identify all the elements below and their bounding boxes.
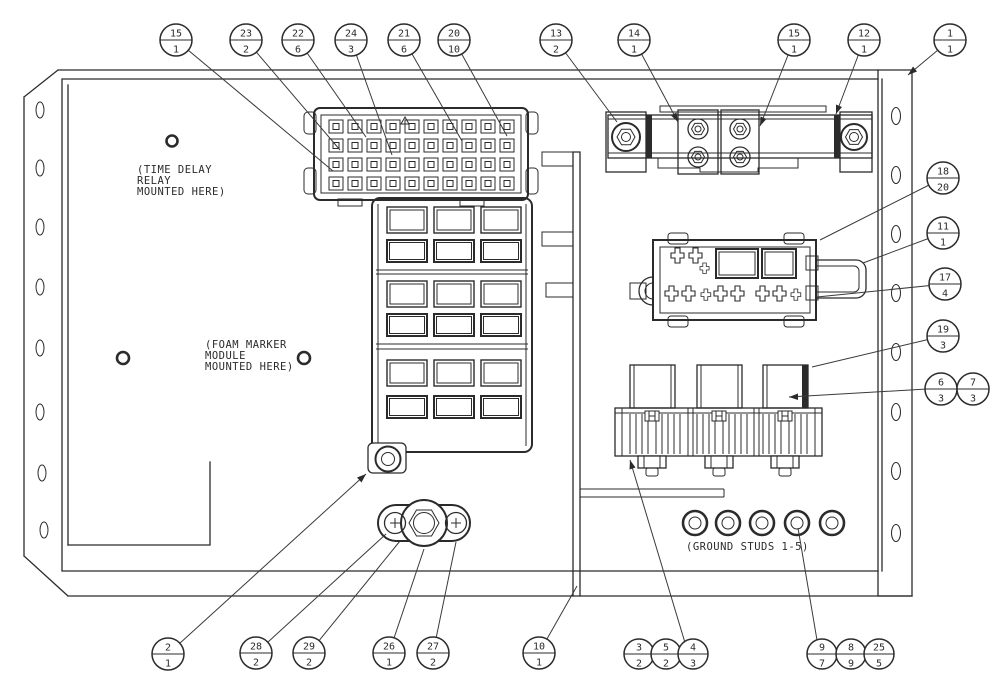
svg-text:7: 7 xyxy=(819,659,825,670)
foam-marker-note-line3: MOUNTED HERE) xyxy=(205,361,294,373)
svg-text:6: 6 xyxy=(938,378,944,389)
parts-diagram: (GROUND STUDS 1-5) (TIME DELAY RELAY MOU… xyxy=(0,0,1000,684)
left-stub xyxy=(630,277,653,305)
svg-text:10: 10 xyxy=(533,642,545,653)
callout-24-3: 243 xyxy=(335,24,367,56)
svg-text:12: 12 xyxy=(858,29,870,40)
callout-5-2: 52 xyxy=(651,639,681,670)
svg-text:9: 9 xyxy=(848,659,854,670)
svg-text:1: 1 xyxy=(165,659,171,670)
callout-10-1: 101 xyxy=(523,637,555,669)
svg-text:7: 7 xyxy=(970,378,976,389)
relay-module-stack xyxy=(368,198,532,473)
svg-text:9: 9 xyxy=(819,643,825,654)
mounting-hole xyxy=(298,352,310,364)
callout-23-2: 232 xyxy=(230,24,262,56)
floor-step xyxy=(68,462,210,545)
mounting-bolt xyxy=(841,124,867,150)
callout-14-1: 141 xyxy=(618,24,650,56)
svg-text:26: 26 xyxy=(383,642,395,653)
diagram-page: (GROUND STUDS 1-5) (TIME DELAY RELAY MOU… xyxy=(0,0,1000,684)
svg-text:13: 13 xyxy=(550,29,562,40)
svg-text:24: 24 xyxy=(345,29,357,40)
svg-text:1: 1 xyxy=(791,45,797,56)
arrowhead xyxy=(789,394,798,401)
callout-2-1: 21 xyxy=(152,638,184,670)
callout-18-20: 1820 xyxy=(927,162,959,194)
svg-text:3: 3 xyxy=(970,394,976,405)
svg-text:25: 25 xyxy=(873,643,885,654)
svg-text:20: 20 xyxy=(937,183,949,194)
ground-studs: (GROUND STUDS 1-5) xyxy=(683,511,844,553)
svg-text:20: 20 xyxy=(448,29,460,40)
center-stud xyxy=(401,500,447,546)
svg-text:4: 4 xyxy=(690,643,696,654)
callout-28-2: 282 xyxy=(240,637,272,669)
svg-text:22: 22 xyxy=(292,29,304,40)
callout-4-3: 43 xyxy=(678,639,708,670)
callout-6-3: 63 xyxy=(925,373,957,405)
svg-text:1: 1 xyxy=(940,238,946,249)
svg-text:3: 3 xyxy=(636,643,642,654)
svg-text:2: 2 xyxy=(253,658,259,669)
svg-text:28: 28 xyxy=(250,642,262,653)
callout-11-1: 111 xyxy=(927,217,959,249)
svg-text:19: 19 xyxy=(937,325,949,336)
callout-7-3: 73 xyxy=(957,373,989,405)
callout-12-1: 121 xyxy=(848,24,880,56)
arrowhead xyxy=(630,460,636,470)
callout-21-6: 216 xyxy=(388,24,420,56)
svg-text:1: 1 xyxy=(536,658,542,669)
svg-text:2: 2 xyxy=(165,643,171,654)
svg-text:6: 6 xyxy=(295,45,301,56)
svg-text:5: 5 xyxy=(663,643,669,654)
svg-text:1: 1 xyxy=(947,45,953,56)
arrowhead xyxy=(671,113,678,123)
terminal-plate xyxy=(378,500,470,546)
bracket-bolt xyxy=(376,447,401,472)
svg-text:2: 2 xyxy=(636,659,642,670)
svg-text:6: 6 xyxy=(401,45,407,56)
callout-15-1: 151 xyxy=(160,24,192,56)
callout-9-7: 97 xyxy=(807,639,837,670)
svg-text:23: 23 xyxy=(240,29,252,40)
svg-text:8: 8 xyxy=(848,643,854,654)
svg-text:1: 1 xyxy=(947,29,953,40)
callout-22-6: 226 xyxy=(282,24,314,56)
svg-text:17: 17 xyxy=(939,273,951,284)
callout-3-2: 32 xyxy=(624,639,654,670)
svg-text:15: 15 xyxy=(788,29,800,40)
svg-text:15: 15 xyxy=(170,29,182,40)
arrowhead xyxy=(760,117,767,127)
panel-notes: (TIME DELAY RELAY MOUNTED HERE) (FOAM MA… xyxy=(137,164,294,373)
callout-25-5: 255 xyxy=(864,639,894,670)
power-relays xyxy=(615,365,822,476)
callout-29-2: 292 xyxy=(293,637,325,669)
svg-text:1: 1 xyxy=(173,45,179,56)
svg-text:18: 18 xyxy=(937,167,949,178)
svg-text:2: 2 xyxy=(430,658,436,669)
callout-26-1: 261 xyxy=(373,637,405,669)
svg-text:2: 2 xyxy=(663,659,669,670)
callout-17-4: 174 xyxy=(929,268,961,300)
terminal-nuts xyxy=(688,119,750,167)
mounting-hole xyxy=(117,352,129,364)
svg-text:10: 10 xyxy=(448,45,460,56)
svg-text:3: 3 xyxy=(938,394,944,405)
connector-module xyxy=(630,233,866,327)
svg-text:5: 5 xyxy=(876,659,882,670)
svg-text:2: 2 xyxy=(553,45,559,56)
svg-text:2: 2 xyxy=(243,45,249,56)
svg-text:14: 14 xyxy=(628,29,640,40)
ground-studs-label: (GROUND STUDS 1-5) xyxy=(686,541,809,553)
relay-feet xyxy=(638,456,799,476)
svg-text:11: 11 xyxy=(937,222,949,233)
svg-text:4: 4 xyxy=(942,289,948,300)
callout-15-1b: 151 xyxy=(778,24,810,56)
circuit-breaker-bracket xyxy=(606,106,872,174)
time-delay-note-line3: MOUNTED HERE) xyxy=(137,186,226,198)
fuse-grid xyxy=(329,120,514,190)
svg-text:3: 3 xyxy=(690,659,696,670)
callout-20-10: 2010 xyxy=(438,24,470,56)
mounting-bolt xyxy=(612,123,640,151)
callout-1-1: 11 xyxy=(934,24,966,56)
svg-text:2: 2 xyxy=(306,658,312,669)
svg-text:1: 1 xyxy=(386,658,392,669)
svg-text:3: 3 xyxy=(940,341,946,352)
svg-text:1: 1 xyxy=(861,45,867,56)
svg-text:29: 29 xyxy=(303,642,315,653)
callout-13-2: 132 xyxy=(540,24,572,56)
svg-text:1: 1 xyxy=(631,45,637,56)
svg-text:27: 27 xyxy=(427,642,439,653)
callout-8-9: 89 xyxy=(836,639,866,670)
mounting-hole xyxy=(167,136,178,147)
svg-text:3: 3 xyxy=(348,45,354,56)
right-rail-slots xyxy=(892,108,901,542)
fuse-block xyxy=(304,108,538,206)
left-flange-slots xyxy=(36,102,48,538)
svg-text:21: 21 xyxy=(398,29,410,40)
callout-27-2: 272 xyxy=(417,637,449,669)
callout-19-3: 193 xyxy=(927,320,959,352)
